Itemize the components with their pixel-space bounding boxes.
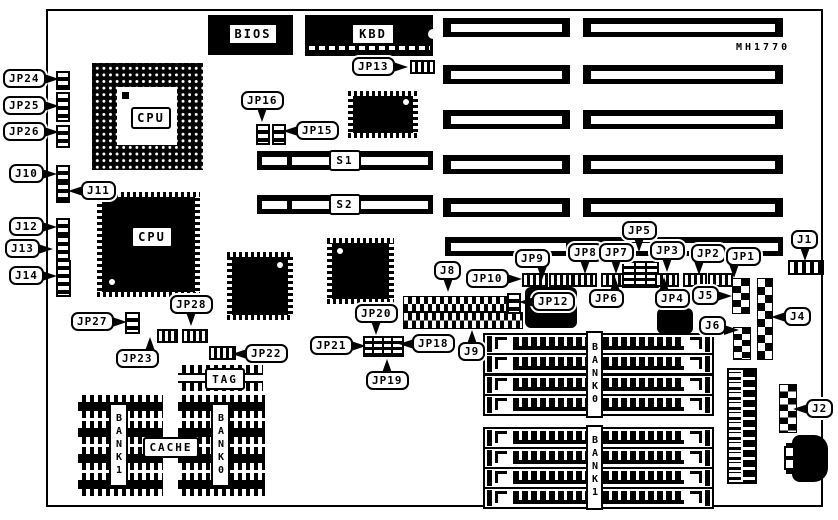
isa-slot-slit bbox=[591, 71, 775, 79]
part-code: MH1770 bbox=[736, 42, 790, 53]
simm-end bbox=[705, 336, 710, 352]
isa-slot-slit bbox=[591, 24, 775, 32]
cache-bank1-label: BANK1 bbox=[109, 403, 128, 487]
header-j9 bbox=[403, 312, 523, 329]
callout-jp9: JP9 bbox=[515, 249, 550, 268]
callout-j12-text: J12 bbox=[15, 220, 38, 233]
callout-jp27: JP27 bbox=[71, 312, 114, 331]
power-connector bbox=[727, 368, 757, 484]
simm-end bbox=[487, 430, 492, 446]
callout-j1-text: J1 bbox=[797, 233, 812, 246]
callout-jp10-text: JP10 bbox=[472, 272, 503, 285]
isa-slot bbox=[583, 155, 783, 174]
callout-jp5-text: JP5 bbox=[628, 224, 651, 237]
callout-jp15-text: JP15 bbox=[302, 124, 333, 137]
callout-jp25: JP25 bbox=[3, 96, 46, 115]
isa-slot bbox=[443, 65, 570, 84]
callout-j4-text: J4 bbox=[790, 310, 805, 323]
simm-clip bbox=[690, 431, 702, 443]
callout-jp25-text: JP25 bbox=[9, 99, 40, 112]
isa-slot bbox=[443, 198, 570, 217]
callout-jp28: JP28 bbox=[170, 295, 213, 314]
callout-j5: J5 bbox=[692, 286, 719, 305]
simm-end bbox=[487, 470, 492, 486]
cache-label: CACHE bbox=[143, 437, 199, 458]
simm-clip bbox=[495, 337, 507, 349]
callout-jp13: JP13 bbox=[352, 57, 395, 76]
isa-slot bbox=[443, 110, 570, 129]
callout-jp23-text: JP23 bbox=[122, 352, 153, 365]
cpu-socket-label: CPU bbox=[131, 107, 171, 129]
motherboard-diagram: MH1770 BIOS KBD JP13 CPU JP16 JP15 S1 S2… bbox=[0, 0, 838, 520]
simm-clip bbox=[690, 337, 702, 349]
callout-j11-text: J11 bbox=[87, 184, 110, 197]
isa-slot-slit bbox=[451, 24, 562, 32]
qfp-chip-top bbox=[348, 91, 418, 138]
callout-jp3-text: JP3 bbox=[656, 244, 679, 257]
callout-j14-text: J14 bbox=[15, 269, 38, 282]
cache-bank0-label: BANK0 bbox=[211, 403, 230, 487]
header-j8 bbox=[403, 296, 507, 312]
isa-slot-slit bbox=[451, 71, 562, 79]
callout-jp16: JP16 bbox=[241, 91, 284, 110]
callout-jp24: JP24 bbox=[3, 69, 46, 88]
callout-jp9-text: JP9 bbox=[521, 252, 544, 265]
callout-jp19-text: JP19 bbox=[372, 374, 403, 387]
simm-clip bbox=[495, 491, 507, 503]
jumper-jp9 bbox=[549, 273, 573, 287]
callout-jp1-text: JP1 bbox=[732, 250, 755, 263]
simm-clip bbox=[495, 378, 507, 390]
callout-j4: J4 bbox=[784, 307, 811, 326]
keyboard-din-notch bbox=[784, 446, 795, 458]
cpu-chip-label: CPU bbox=[131, 226, 173, 248]
jumper-jp13 bbox=[410, 60, 435, 74]
simm-clip bbox=[495, 398, 507, 410]
callout-j2-text: J2 bbox=[812, 402, 827, 415]
simm-bank0-label: BANK0 bbox=[586, 331, 603, 418]
callout-jp8: JP8 bbox=[568, 243, 603, 262]
callout-jp6-text: JP6 bbox=[595, 292, 618, 305]
callout-jp16-text: JP16 bbox=[247, 94, 278, 107]
jumper-jp8 bbox=[573, 273, 597, 287]
isa-slot bbox=[583, 18, 783, 37]
kbd-chip-label: KBD bbox=[353, 25, 393, 43]
qfp-chip-top-pin1-dot bbox=[403, 99, 409, 105]
isa-slot-slit bbox=[591, 204, 775, 212]
callout-j1: J1 bbox=[791, 230, 818, 249]
callout-j9: J9 bbox=[458, 342, 485, 361]
callout-jp4-text: JP4 bbox=[661, 292, 684, 305]
callout-jp8-text: JP8 bbox=[574, 246, 597, 259]
callout-jp2-text: JP2 bbox=[697, 247, 720, 260]
callout-jp15: JP15 bbox=[296, 121, 339, 140]
callout-jp10: JP10 bbox=[466, 269, 509, 288]
callout-j8-text: J8 bbox=[440, 264, 455, 277]
tag-chip-label: TAG bbox=[205, 368, 245, 390]
callout-jp20: JP20 bbox=[355, 304, 398, 323]
simm-end bbox=[705, 397, 710, 413]
callout-j6-text: J6 bbox=[705, 319, 720, 332]
callout-jp6: JP6 bbox=[589, 289, 624, 308]
callout-jp18: JP18 bbox=[412, 334, 455, 353]
callout-jp2: JP2 bbox=[691, 244, 726, 263]
callout-jp26: JP26 bbox=[3, 122, 46, 141]
isa-slot-slit bbox=[451, 204, 562, 212]
simm-clip bbox=[495, 451, 507, 463]
callout-j13: J13 bbox=[5, 239, 40, 258]
simm-end bbox=[487, 356, 492, 372]
simm-clip bbox=[690, 398, 702, 410]
chip-near-jp4 bbox=[657, 308, 693, 334]
simm-clip bbox=[690, 451, 702, 463]
bios-chip-label: BIOS bbox=[230, 25, 276, 43]
callout-j10-text: J10 bbox=[15, 167, 38, 180]
kbd-chip-dashed-line bbox=[309, 46, 430, 50]
isa-slot bbox=[583, 198, 783, 217]
callout-jp7-text: JP7 bbox=[605, 246, 628, 259]
simm-end bbox=[487, 336, 492, 352]
simm-bank1-label: BANK1 bbox=[586, 425, 603, 510]
callout-jp26-text: JP26 bbox=[9, 125, 40, 138]
callout-jp21-text: JP21 bbox=[316, 339, 347, 352]
simm-end bbox=[705, 430, 710, 446]
callout-jp5: JP5 bbox=[622, 221, 657, 240]
isa-slot bbox=[583, 110, 783, 129]
callout-jp23: JP23 bbox=[116, 349, 159, 368]
jumper-jp2 bbox=[683, 273, 707, 287]
callout-jp22-text: JP22 bbox=[251, 347, 282, 360]
isa-slot bbox=[443, 18, 570, 37]
callout-jp1: JP1 bbox=[726, 247, 761, 266]
slot-s1-divider bbox=[287, 157, 292, 165]
callout-j13-text: J13 bbox=[11, 242, 34, 255]
callout-jp7: JP7 bbox=[599, 243, 634, 262]
callout-j5-text: J5 bbox=[698, 289, 713, 302]
callout-jp12: JP12 bbox=[532, 292, 575, 311]
callout-j10: J10 bbox=[9, 164, 44, 183]
simm-clip bbox=[690, 491, 702, 503]
callout-j12: J12 bbox=[9, 217, 44, 236]
simm-clip bbox=[690, 357, 702, 369]
isa-slot bbox=[583, 65, 783, 84]
simm-end bbox=[705, 490, 710, 506]
jumper-jp16 bbox=[256, 124, 270, 145]
callout-j11: J11 bbox=[81, 181, 116, 200]
slot-s2-label: S2 bbox=[329, 194, 361, 215]
jumper-jp23 bbox=[157, 329, 178, 343]
simm-clip bbox=[495, 357, 507, 369]
callout-jp28-text: JP28 bbox=[176, 298, 207, 311]
simm-clip bbox=[690, 471, 702, 483]
qfp-chip-mid-right bbox=[327, 238, 394, 304]
callout-j14: J14 bbox=[9, 266, 44, 285]
callout-jp22: JP22 bbox=[245, 344, 288, 363]
simm-end bbox=[705, 377, 710, 393]
qfp-chip-mid-left-pin1-dot bbox=[277, 262, 283, 268]
simm-end bbox=[705, 450, 710, 466]
callout-jp20-text: JP20 bbox=[361, 307, 392, 320]
simm-end bbox=[705, 356, 710, 372]
callout-jp4: JP4 bbox=[655, 289, 690, 308]
callout-j8: J8 bbox=[434, 261, 461, 280]
simm-end bbox=[487, 397, 492, 413]
connector-j14 bbox=[56, 260, 71, 297]
isa-slot-slit bbox=[451, 243, 566, 251]
callout-j2: J2 bbox=[806, 399, 833, 418]
header-j5 bbox=[732, 278, 750, 314]
isa-slot-slit bbox=[451, 161, 562, 169]
isa-slot-slit bbox=[591, 161, 775, 169]
qfp-chip-mid-left bbox=[227, 252, 293, 320]
cpu-socket-pin1-mark bbox=[122, 92, 129, 99]
callout-jp19: JP19 bbox=[366, 371, 409, 390]
isa-slot-slit bbox=[451, 116, 562, 124]
kbd-chip-notch bbox=[428, 29, 438, 39]
callout-j6: J6 bbox=[699, 316, 726, 335]
simm-end bbox=[487, 377, 492, 393]
jumper-jp28 bbox=[182, 329, 208, 343]
callout-j9-text: J9 bbox=[464, 345, 479, 358]
simm-clip bbox=[495, 471, 507, 483]
keyboard-din-notch bbox=[784, 458, 795, 470]
keyboard-din-connector bbox=[792, 435, 828, 482]
callout-jp12-text: JP12 bbox=[538, 295, 569, 308]
jumper-jp27 bbox=[125, 312, 140, 334]
simm-end bbox=[487, 490, 492, 506]
connector-j1 bbox=[788, 260, 824, 275]
callout-jp24-text: JP24 bbox=[9, 72, 40, 85]
simm-clip bbox=[690, 378, 702, 390]
simm-end bbox=[705, 470, 710, 486]
isa-slot-slit bbox=[591, 116, 775, 124]
slot-s1-label: S1 bbox=[329, 150, 361, 171]
callout-jp13-text: JP13 bbox=[358, 60, 389, 73]
qfp-chip-mid-right-pin1-dot bbox=[337, 248, 343, 254]
callout-jp21: JP21 bbox=[310, 336, 353, 355]
callout-jp3: JP3 bbox=[650, 241, 685, 260]
simm-clip bbox=[495, 431, 507, 443]
isa-slot bbox=[443, 155, 570, 174]
simm-end bbox=[487, 450, 492, 466]
connector-j13 bbox=[56, 236, 70, 263]
slot-s2-divider bbox=[287, 201, 292, 209]
callout-jp27-text: JP27 bbox=[77, 315, 108, 328]
cpu-chip-pin1-dot bbox=[109, 279, 115, 285]
callout-jp18-text: JP18 bbox=[418, 337, 449, 350]
